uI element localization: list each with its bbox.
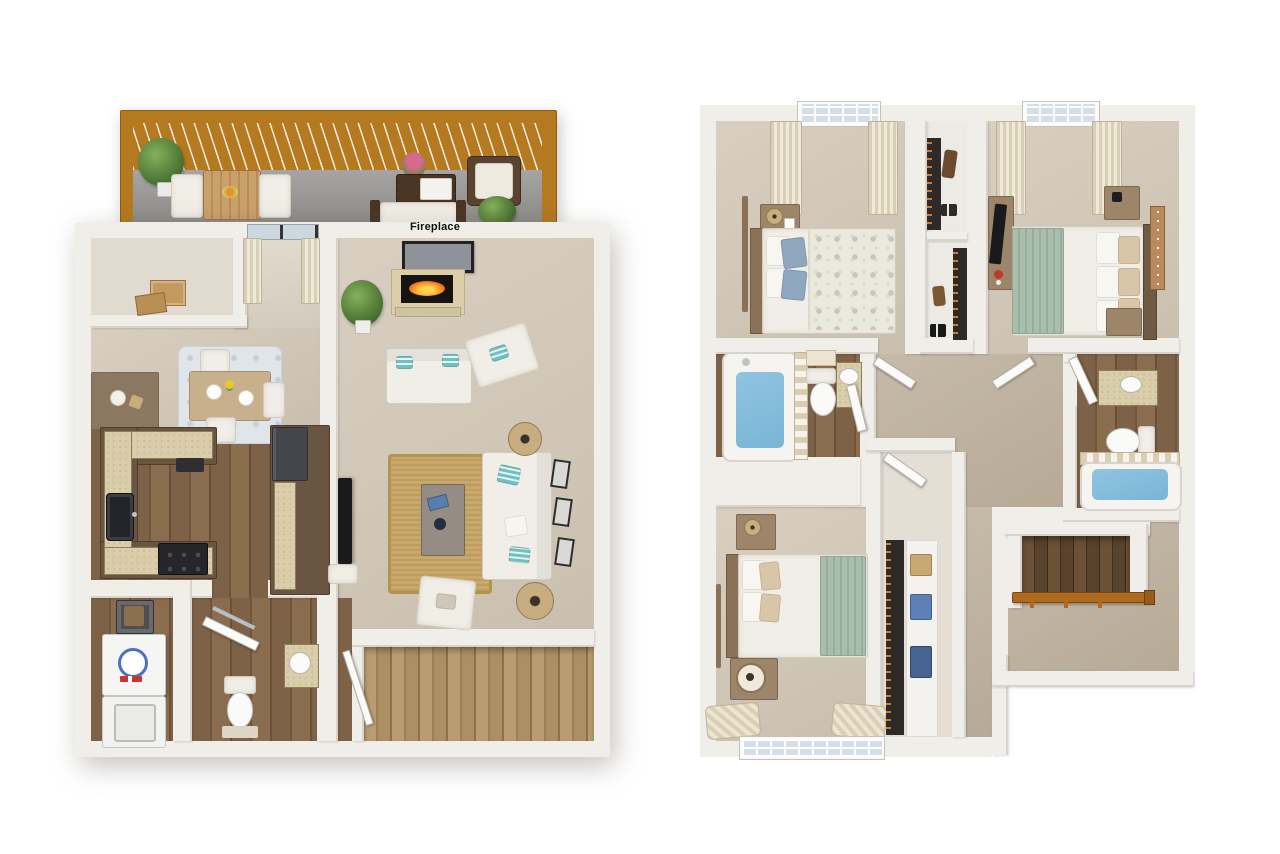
bedroom2-curtain-right [868,121,898,215]
master-pillow-white-2 [1096,266,1120,298]
closet-master-wall [967,121,988,354]
bedroom2-floor-mirror [742,196,748,312]
bathroom2-tub-water [1092,469,1168,500]
notch-horizontal-wall [992,671,1193,687]
closet-loafer-icon [932,285,946,306]
master-pillow-white-1 [1096,232,1120,264]
staircase2-newel-post [1144,590,1155,605]
walkin-storage-box-icon [910,554,932,576]
walkin-jeans-icon [910,646,932,678]
bedroom2-curtain-left [770,121,802,215]
bedroom2-lamp-icon [766,208,783,225]
bedroom3-lamp-icon [744,519,761,536]
bedroom3-curtain-bunch-right [831,702,888,741]
master-wall-sign [1150,206,1165,290]
bathroom1-sink-icon [839,368,859,385]
bedroom2-pillow-blue-2 [780,269,807,301]
closet-shoes-lower-icon [930,324,946,337]
staircase2-baluster-3 [1098,601,1102,608]
master-pillow-tan-2 [1118,268,1140,296]
staircase2-baluster-1 [1030,601,1034,608]
notch-vertical-wall [992,655,1008,755]
second-floor-plan [0,0,1280,854]
stairwell-right-wall [1130,524,1148,594]
walkin-folded-shirt-icon [910,594,932,620]
bathroom1-shower-head-icon [742,358,750,366]
bathroom2-toilet-bowl [1106,428,1140,455]
master-flower-vase-icon [994,270,1003,279]
bathroom2-left-wall-bottom [1063,406,1077,508]
master-alarm-clock-icon [1112,192,1122,202]
bathroom1-tub-water [736,372,784,448]
closet-shoes-upper-icon [941,204,957,216]
bedroom3-curtain-rod [716,584,721,668]
master-nightstand-bottom [1106,308,1142,336]
bathroom1-bottom-wall [716,457,860,507]
master-pillow-tan-1 [1118,236,1140,264]
bedroom3-pillow-tan-1 [759,561,782,591]
hall-top-wall-right [1028,338,1179,354]
bedroom2-floral-duvet [808,230,894,330]
bedroom3-pillow-tan-2 [759,593,781,623]
bathroom1-toilet-bowl [810,382,836,416]
bedroom2-pillow-blue-1 [780,237,807,270]
floor-plan-image: Fireplace [0,0,1280,854]
staircase2-steps [1022,536,1130,594]
closet-vestibule-wall [866,438,955,452]
bedroom3-clock-hands-icon [746,673,754,681]
stairwell-top-wall [1005,522,1150,536]
master-sage-throw [1012,228,1064,334]
staircase2-baluster-2 [1064,601,1068,608]
closet-hanging-clothes-lower [953,248,967,340]
bedroom3-curtain-bunch-left [705,702,762,741]
bedroom3-sage-throw [820,556,866,656]
hall-top-wall-mid [920,338,973,354]
walkin-closet-right-wall [952,452,966,737]
closet-hanging-clothes-upper [927,138,941,230]
walkin-hanging-clothes [886,540,904,735]
bathroom1-towel-icon [806,350,836,366]
master-nightstand-top [1104,186,1140,220]
hallway-corridor-floor [966,507,992,737]
bathroom2-sink-icon [1120,376,1142,393]
bedroom3-right-wall [866,438,882,741]
bedroom3-window [740,737,884,759]
bedroom2-closet-wall [905,121,927,354]
closet-divider-shelf [927,232,967,241]
master-window [1023,102,1099,126]
